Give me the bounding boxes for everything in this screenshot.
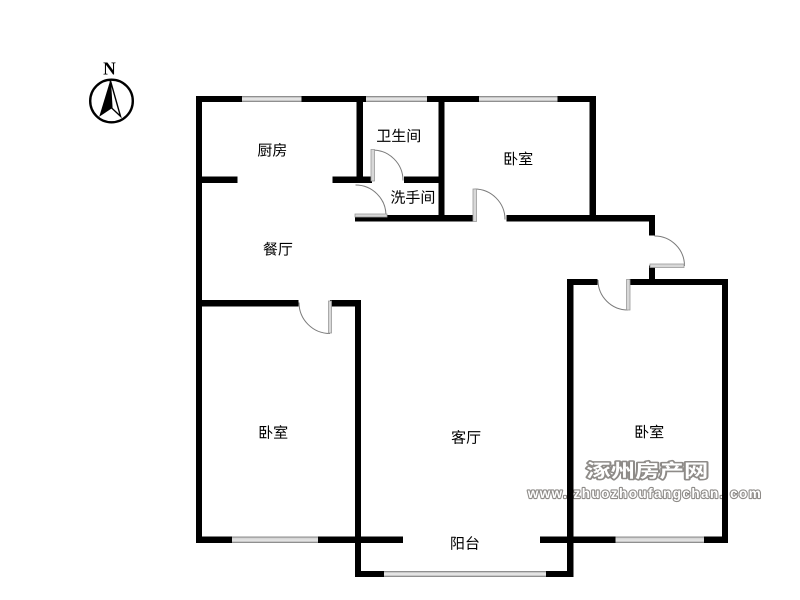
svg-text:N: N [103,59,116,79]
